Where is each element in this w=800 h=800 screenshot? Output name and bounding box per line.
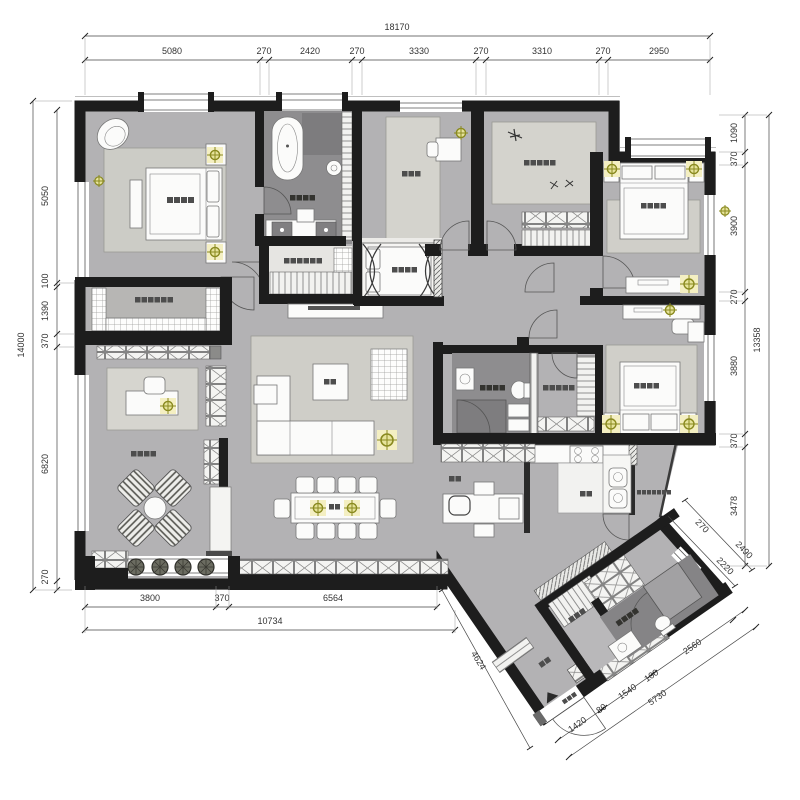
svg-text:370: 370 bbox=[214, 593, 229, 603]
svg-text:370: 370 bbox=[729, 433, 739, 448]
svg-text:270: 270 bbox=[40, 569, 50, 584]
svg-text:5080: 5080 bbox=[162, 46, 182, 56]
svg-text:370: 370 bbox=[40, 333, 50, 348]
svg-text:1090: 1090 bbox=[729, 123, 739, 143]
svg-text:270: 270 bbox=[729, 289, 739, 304]
svg-text:14000: 14000 bbox=[16, 332, 26, 357]
svg-text:3880: 3880 bbox=[729, 356, 739, 376]
svg-text:6564: 6564 bbox=[323, 593, 343, 603]
svg-text:18170: 18170 bbox=[384, 22, 409, 32]
svg-text:13358: 13358 bbox=[752, 327, 762, 352]
svg-text:270: 270 bbox=[473, 46, 488, 56]
svg-text:6820: 6820 bbox=[40, 454, 50, 474]
svg-text:3900: 3900 bbox=[729, 216, 739, 236]
svg-text:3330: 3330 bbox=[409, 46, 429, 56]
svg-text:3478: 3478 bbox=[729, 496, 739, 516]
svg-text:3800: 3800 bbox=[140, 593, 160, 603]
svg-text:3310: 3310 bbox=[532, 46, 552, 56]
svg-text:10734: 10734 bbox=[257, 616, 282, 626]
svg-text:270: 270 bbox=[595, 46, 610, 56]
svg-text:5050: 5050 bbox=[40, 186, 50, 206]
svg-text:2420: 2420 bbox=[300, 46, 320, 56]
svg-text:270: 270 bbox=[256, 46, 271, 56]
svg-text:2950: 2950 bbox=[649, 46, 669, 56]
svg-text:270: 270 bbox=[349, 46, 364, 56]
svg-text:1390: 1390 bbox=[40, 301, 50, 321]
svg-text:370: 370 bbox=[729, 151, 739, 166]
svg-text:100: 100 bbox=[40, 273, 50, 288]
